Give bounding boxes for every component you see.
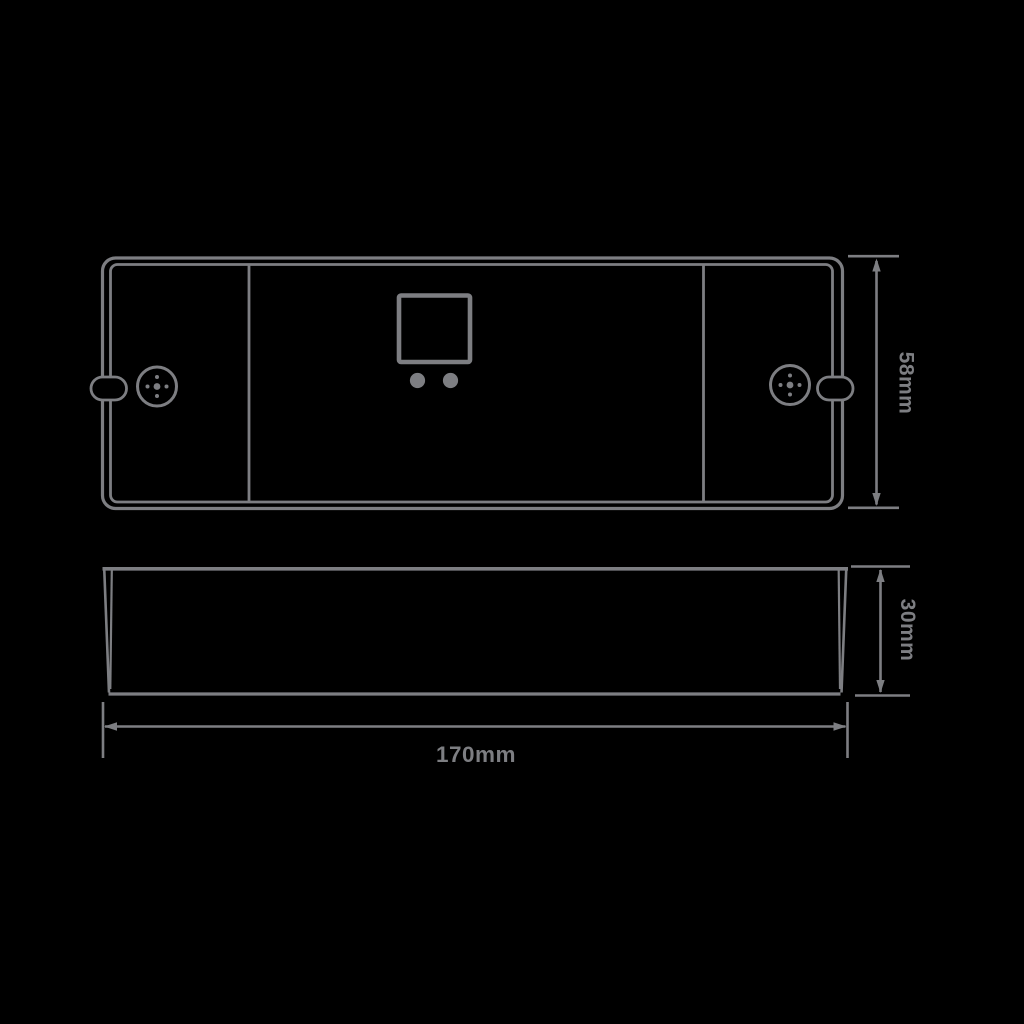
- arrowhead-up-icon: [872, 259, 880, 272]
- dimension-drawing: 58mm 30mm 170mm: [0, 0, 1024, 1024]
- screw-right-icon: [771, 366, 810, 405]
- depth-dimension: 30mm: [851, 567, 919, 696]
- enclosure-outer-outline: [103, 258, 843, 509]
- side-left-outer-edge: [104, 571, 109, 693]
- led-indicator-right: [443, 373, 458, 388]
- width-label: 170mm: [436, 742, 516, 767]
- button: [399, 296, 470, 363]
- mounting-slot-right: [818, 377, 854, 400]
- side-view: [103, 569, 849, 694]
- drawing-canvas: 58mm 30mm 170mm: [0, 0, 1024, 1024]
- height-dimension: 58mm: [848, 256, 917, 508]
- side-right-outer-edge: [842, 571, 847, 693]
- top-view: [91, 258, 853, 509]
- arrowhead-down-icon: [876, 680, 884, 693]
- arrowhead-left-icon: [104, 722, 117, 731]
- arrowhead-down-icon: [872, 493, 880, 506]
- width-dimension: 170mm: [103, 702, 848, 767]
- side-right-inner-edge: [839, 571, 840, 690]
- mounting-slot-left: [91, 377, 127, 400]
- screw-left-icon: [138, 367, 177, 406]
- arrowhead-right-icon: [834, 722, 847, 731]
- depth-label: 30mm: [896, 599, 919, 662]
- height-label: 58mm: [894, 352, 917, 415]
- led-indicator-left: [410, 373, 425, 388]
- side-left-inner-edge: [110, 571, 112, 690]
- arrowhead-up-icon: [876, 569, 884, 582]
